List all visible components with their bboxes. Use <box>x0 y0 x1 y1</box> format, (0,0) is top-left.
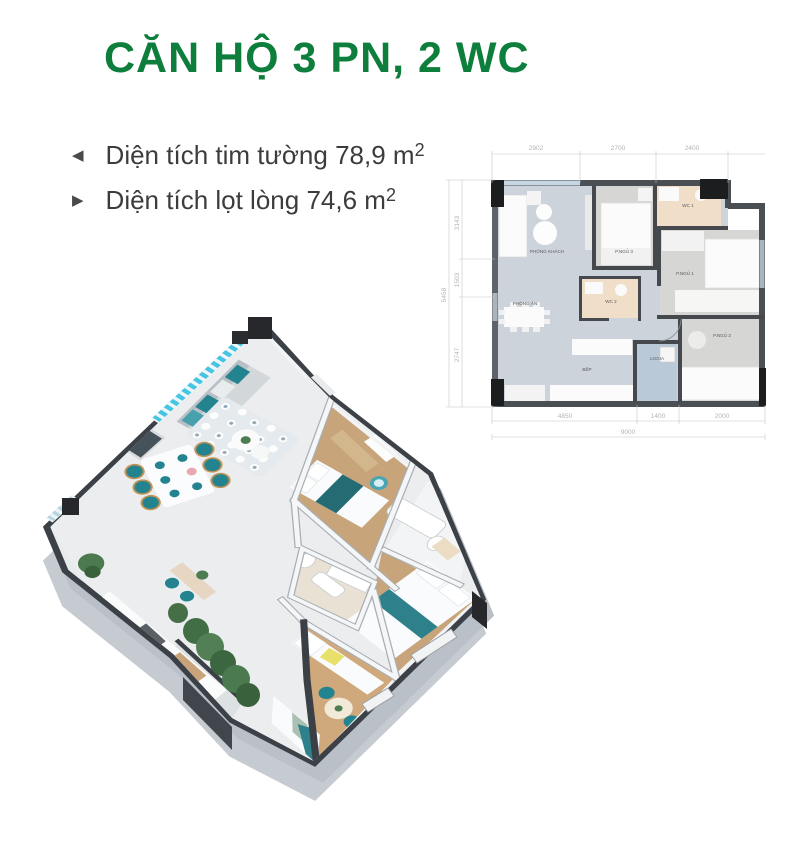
svg-text:P.NGỦ 2: P.NGỦ 2 <box>713 332 731 338</box>
svg-text:LOGIA: LOGIA <box>650 356 665 361</box>
svg-text:9000: 9000 <box>621 429 636 436</box>
svg-text:P.NGỦ 3: P.NGỦ 3 <box>615 248 633 254</box>
svg-text:2902: 2902 <box>529 145 544 152</box>
svg-text:2400: 2400 <box>685 145 700 152</box>
svg-text:PHÒNG KHÁCH: PHÒNG KHÁCH <box>530 248 564 254</box>
svg-text:1400: 1400 <box>651 413 666 420</box>
svg-text:P.NGỦ 1: P.NGỦ 1 <box>676 270 694 276</box>
svg-text:4850: 4850 <box>558 413 573 420</box>
svg-text:WC 1: WC 1 <box>682 203 694 208</box>
svg-text:2000: 2000 <box>715 413 730 420</box>
svg-text:WC 2: WC 2 <box>605 299 617 304</box>
svg-text:1503: 1503 <box>454 272 461 287</box>
svg-text:BẾP: BẾP <box>582 366 591 372</box>
svg-text:3143: 3143 <box>454 215 461 230</box>
svg-text:2700: 2700 <box>611 145 626 152</box>
